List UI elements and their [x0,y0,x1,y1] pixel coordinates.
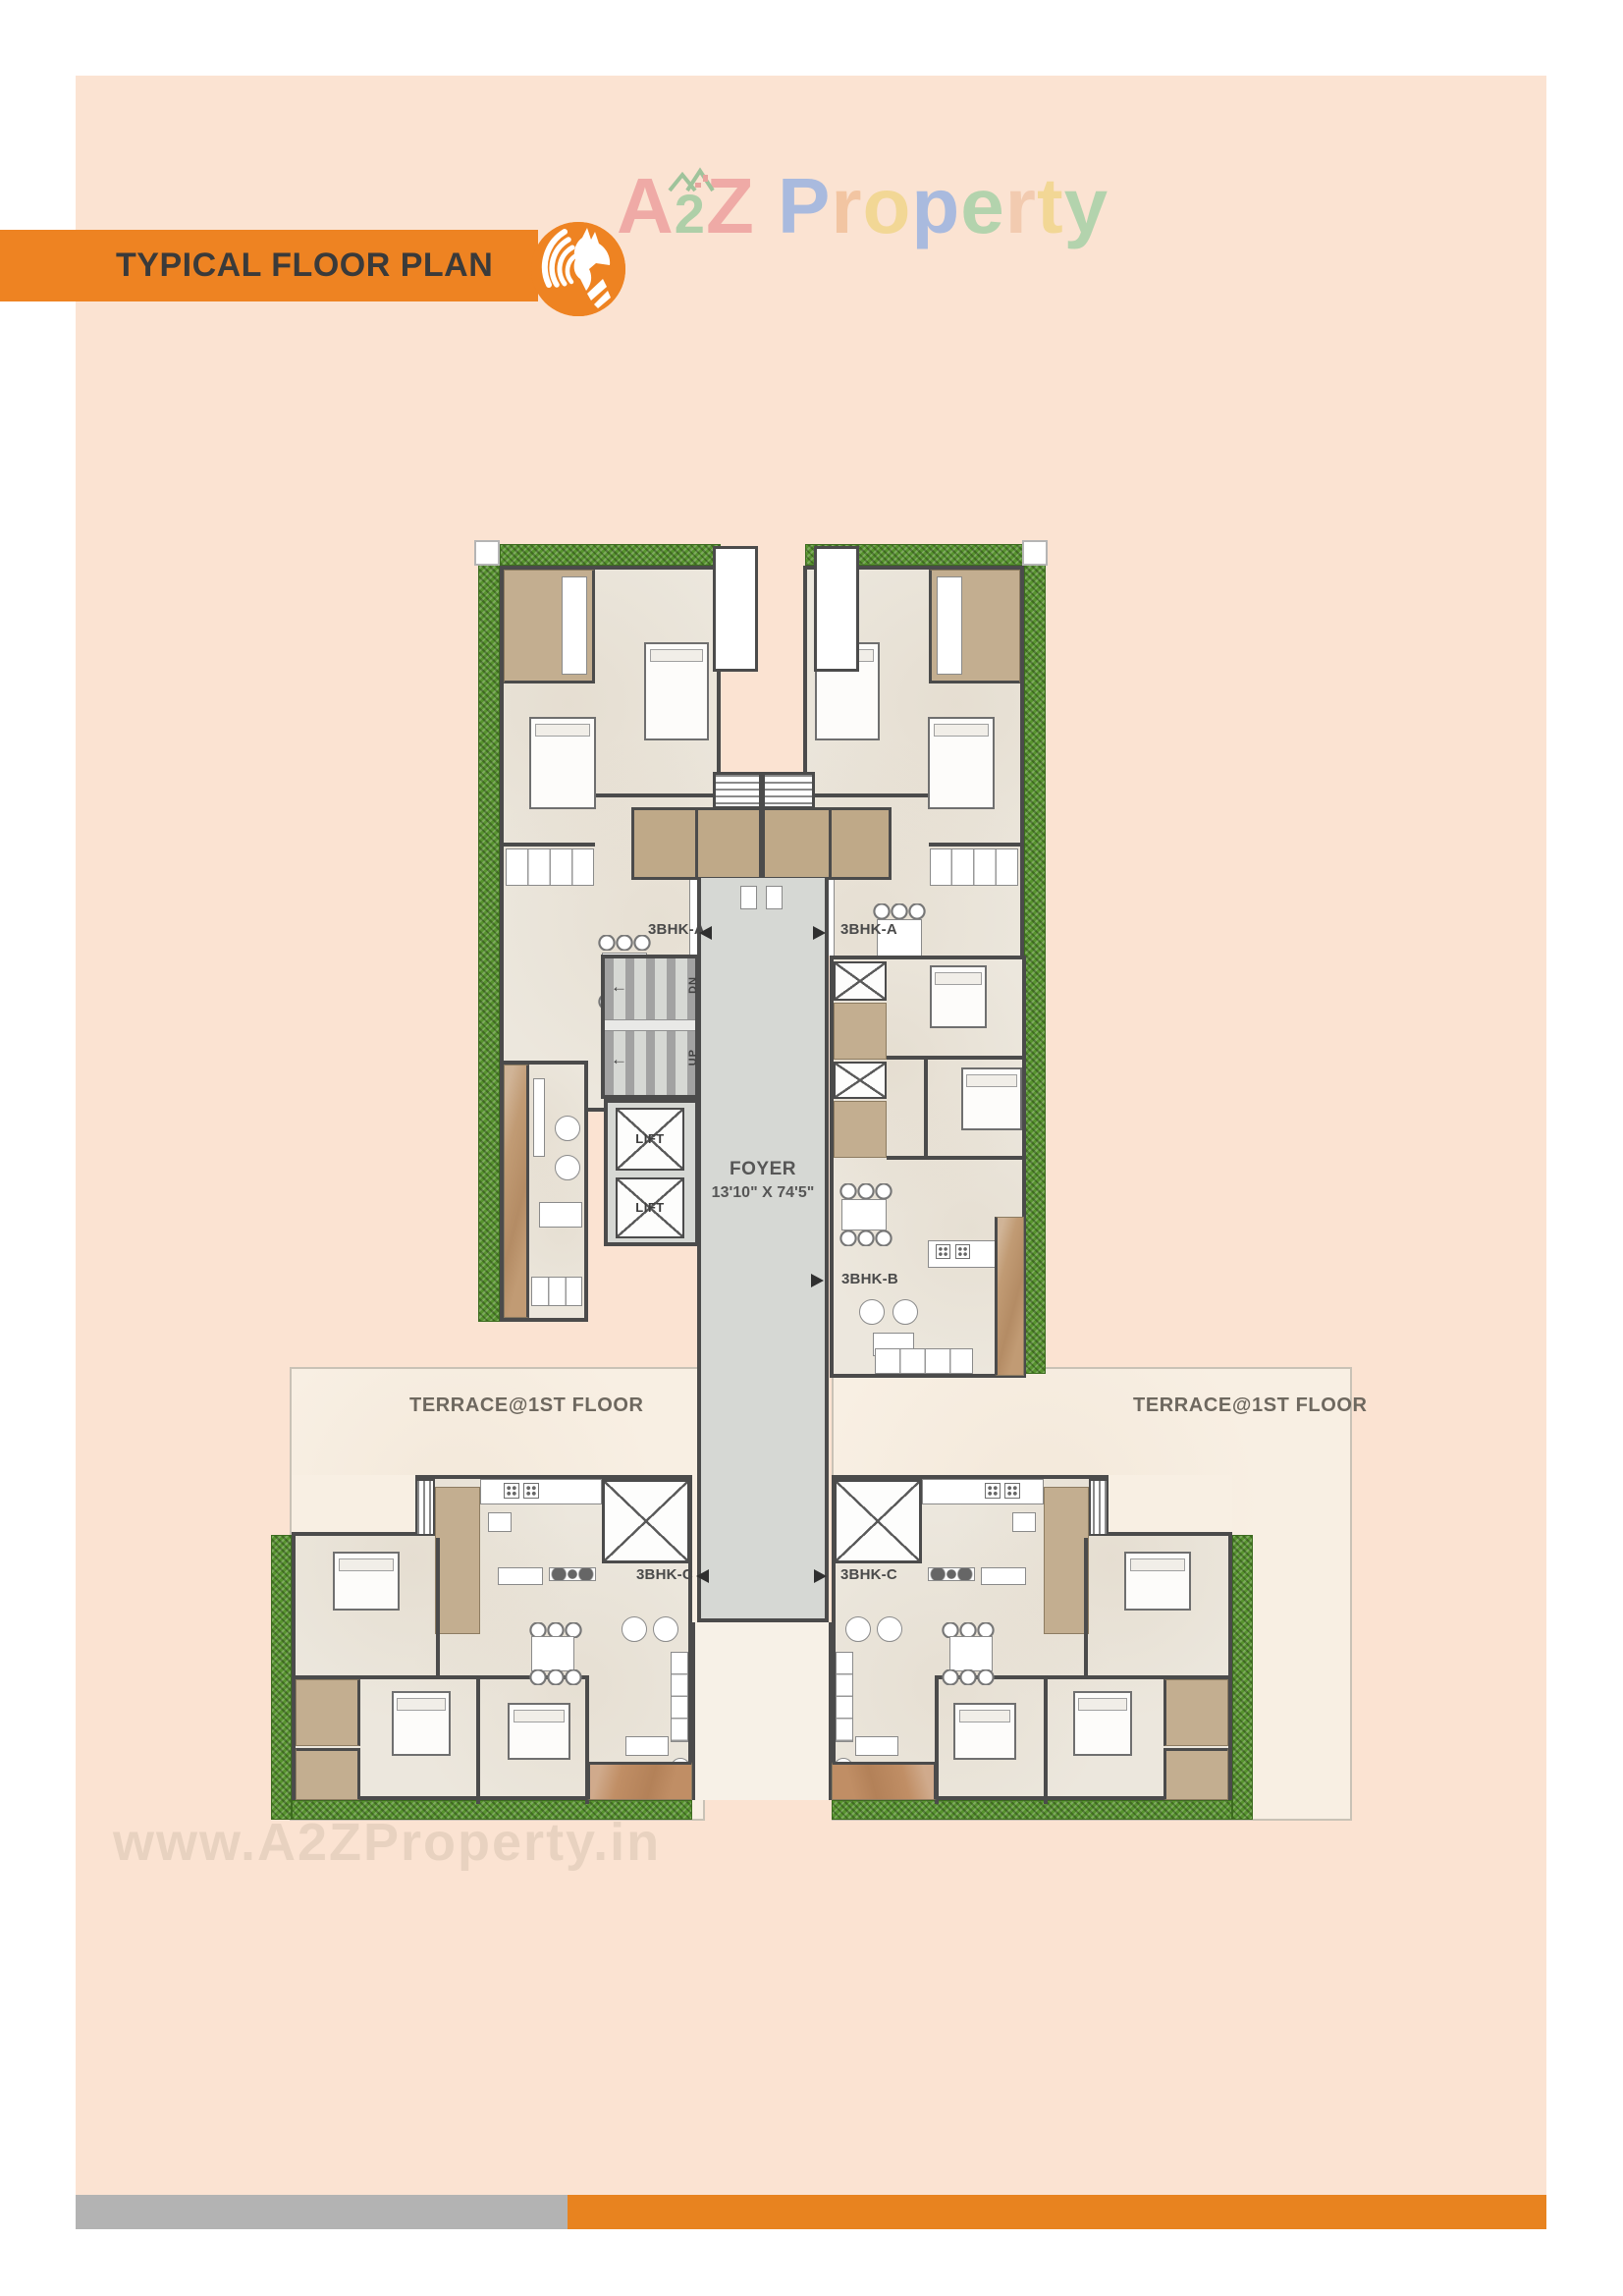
coffee-table [539,1202,582,1228]
lift-core: LIFT LIFT [604,1099,699,1246]
hedge-bottom-right [832,1800,1232,1820]
logo-letter: r [1005,162,1037,249]
logo-letter: P [778,162,831,249]
duct-box [834,961,887,1001]
logo-letter: e [960,162,1005,249]
stair-arrow-up: ← [611,1055,627,1065]
sofa [855,1736,898,1756]
unit-3bhk-c-right [832,1475,1232,1800]
wardrobe-row [930,848,1018,886]
stove [504,1483,519,1499]
bed [508,1703,570,1760]
dining-table [841,1199,887,1230]
passage-deck [435,1487,480,1634]
meter-box [740,886,757,909]
horse-icon [531,222,625,316]
bed [961,1067,1022,1130]
partition-wall [807,793,929,797]
balcony-louver [415,1479,435,1536]
kitchen-island [498,1567,543,1585]
partition-wall [887,1056,1022,1060]
partition-wall [595,793,717,797]
sofa [875,1348,973,1374]
dining-chairs [873,903,926,919]
unit-label-3bhk-b: 3BHK-B [841,1271,898,1287]
entry-arrow-icon [814,1569,827,1583]
bed [930,965,987,1028]
balcony-deck [832,1762,937,1800]
foyer-label: FOYER [701,1159,825,1180]
dress-area [1163,1679,1228,1746]
pouffe [859,1299,885,1325]
shoe-rack [928,1567,975,1581]
foyer: FOYER 13'10" X 74'5" [697,878,829,1622]
dining-chairs [942,1669,995,1685]
staircase: ← ← [601,955,699,1099]
sofa [625,1736,669,1756]
lift-shaft-2: LIFT [616,1177,684,1238]
bed [1073,1691,1132,1756]
logo-letter: t [1037,162,1064,249]
bed [644,642,709,740]
stove [955,1244,970,1259]
stair-up-label: UP [687,1049,699,1066]
wardrobe [937,576,962,675]
logo-letter: y [1064,162,1109,249]
dress-area [834,1101,887,1158]
pouffe [845,1616,871,1642]
partition-wall [1044,1679,1048,1804]
floor-plan-page: TYPICAL FLOOR PLAN A2Z Property TERRACE@… [0,0,1623,2296]
balcony-deck [587,1762,692,1800]
stair-arrow-dn: ← [611,982,627,992]
shoe-rack [549,1567,596,1581]
meter-box [766,886,783,909]
unit-label-3bhk-a-right: 3BHK-A [840,921,897,938]
balcony-louver [1089,1479,1109,1536]
dress-area [296,1679,360,1746]
pouffe [877,1616,902,1642]
logo-letter: A [617,162,675,249]
pouffe [893,1299,918,1325]
hedge-cap-left [474,540,500,566]
sofa [531,1277,582,1306]
unit-label-3bhk-c-right: 3BHK-C [840,1566,897,1583]
partition-wall [436,1538,440,1679]
dining-table [949,1636,993,1671]
footer-orange-bar [568,2195,1546,2229]
stove [985,1483,1001,1499]
duct-box [713,546,758,672]
pouffe [622,1616,647,1642]
lift-shaft-1: LIFT [616,1108,684,1171]
foyer-dimensions: 13'10" X 74'5" [701,1184,825,1202]
duct-box [834,1062,887,1099]
partition-wall [1084,1538,1088,1679]
bed [953,1703,1016,1760]
lift-1-label: LIFT [618,1131,682,1146]
terrace-right-label: TERRACE@1ST FLOOR [1133,1394,1368,1417]
logo-letter: p [911,162,960,249]
horse-badge [531,222,625,316]
dress-area [296,1748,360,1800]
bed [928,717,995,809]
bed [529,717,596,809]
page-title: TYPICAL FLOOR PLAN [116,230,493,301]
hedge-upper-right [1024,544,1046,1374]
lower-court [692,1622,832,1800]
pouffe [653,1616,678,1642]
logo-letter: r [831,162,862,249]
stair-landing [605,1019,695,1031]
sofa [836,1652,853,1742]
logo-property-letters: Property [778,162,1109,249]
title-banner: TYPICAL FLOOR PLAN [0,230,538,301]
wardrobe-row [506,848,594,886]
stove [1004,1483,1020,1499]
pouffe [555,1116,580,1141]
dining-chairs [839,1183,893,1199]
dining-chairs [529,1669,582,1685]
fridge [1012,1512,1036,1532]
hedge-upper-left [478,544,500,1322]
pouffe [555,1155,580,1180]
entry-arrow-icon [699,926,712,940]
entry-arrow-icon [811,1274,824,1287]
kitchen-island [981,1567,1026,1585]
a2z-property-logo: A2Z Property [617,155,1109,257]
balcony-deck [504,1065,529,1318]
hedge-lower-left [271,1535,292,1820]
unit-3bhk-a-left-living [500,1061,588,1322]
stair-dn-label: DN [687,976,699,994]
dress-area [834,1003,887,1060]
terrace-notch [1109,1475,1232,1536]
dress-area [929,570,1020,683]
kitchen-counter [922,1479,1044,1504]
duct-box [602,1479,690,1563]
footer-gray-bar [76,2195,568,2229]
passage-deck [1044,1487,1089,1634]
duct-box [814,546,859,672]
partition-wall [829,810,832,877]
sofa [671,1652,688,1742]
fridge [488,1512,512,1532]
stove [523,1483,539,1499]
unit-label-3bhk-c-left: 3BHK-C [636,1566,693,1583]
dining-chairs [598,935,651,951]
terrace-notch [292,1475,415,1536]
partition-wall [887,1156,1022,1160]
bed [333,1552,400,1611]
house-roof-icon [668,163,717,192]
unit-3bhk-c-right-plan [832,1475,1232,1800]
kitchen-counter [480,1479,602,1504]
bed [1124,1552,1191,1611]
partition-wall [504,843,595,847]
center-wall [759,772,765,880]
balcony-deck [995,1217,1024,1376]
dress-area [504,570,595,683]
duct-box [834,1479,922,1563]
entry-arrow-icon [696,1569,709,1583]
entry-arrow-icon [813,926,826,940]
lift-2-label: LIFT [618,1200,682,1215]
partition-wall [476,1679,480,1804]
stove [936,1244,950,1259]
partition-wall [929,843,1020,847]
terrace-left-label: TERRACE@1ST FLOOR [409,1394,644,1417]
dining-table [531,1636,574,1671]
dress-area [1163,1748,1228,1800]
hedge-top-left [500,544,721,566]
partition-wall [695,810,698,877]
bed [392,1691,451,1756]
hedge-lower-right [1232,1535,1253,1820]
hedge-cap-right [1022,540,1048,566]
unit-label-3bhk-a-left: 3BHK-A [648,921,705,938]
logo-letter: o [863,162,912,249]
unit-3bhk-c-left [292,1475,692,1800]
wardrobe [562,576,587,675]
dining-chairs [839,1230,893,1246]
watermark: www.A2ZProperty.in [113,1812,661,1873]
unit-3bhk-b [830,956,1026,1378]
partition-wall [924,1060,928,1158]
tv-unit [533,1078,545,1157]
